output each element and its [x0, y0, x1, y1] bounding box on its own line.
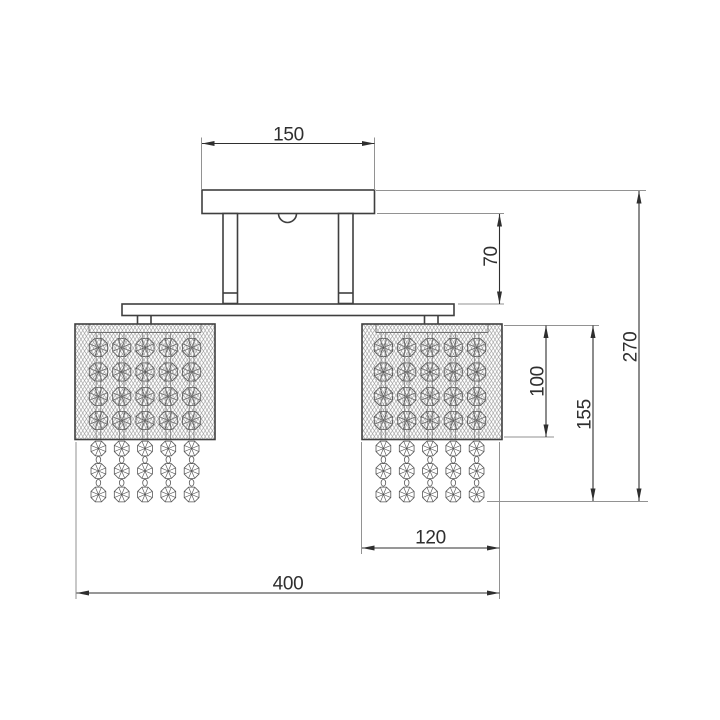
- arrow-down-icon: [637, 489, 642, 502]
- strand-link: [119, 479, 124, 486]
- strand-link: [474, 479, 479, 486]
- crystal-bead: [114, 464, 129, 479]
- arrow-right-icon: [487, 546, 500, 551]
- crystal-bead: [423, 441, 438, 456]
- dim-label-400: 400: [273, 574, 304, 595]
- crystal-bead: [114, 441, 129, 456]
- stem-left: [223, 214, 238, 304]
- dim-shade-drop-155: 155: [575, 326, 596, 502]
- arrow-up-icon: [591, 326, 596, 339]
- technical-drawing-page: 150 70 100 155 270: [0, 0, 720, 720]
- arrow-right-icon: [362, 141, 375, 146]
- arrow-left-icon: [77, 591, 90, 596]
- strand-link: [119, 456, 124, 463]
- crystal-bead: [138, 441, 153, 456]
- crystal-bead: [399, 464, 414, 479]
- strand-link: [451, 456, 456, 463]
- crystal-bead: [469, 464, 484, 479]
- strand-link: [143, 479, 148, 486]
- dim-label-270: 270: [621, 332, 642, 363]
- arrow-up-icon: [544, 326, 549, 339]
- crystal-bead: [399, 487, 414, 502]
- crystal-bead: [184, 464, 199, 479]
- strand-link: [381, 456, 386, 463]
- strand-link: [404, 456, 409, 463]
- mesh-panel-left: [75, 324, 215, 440]
- stem-right: [339, 214, 354, 304]
- dim-overall-width-400: 400: [77, 574, 500, 596]
- arrow-up-icon: [497, 214, 502, 227]
- strand-link: [96, 479, 101, 486]
- dim-stem-drop-70: 70: [481, 214, 502, 304]
- crystal-bead: [423, 464, 438, 479]
- crystal-bead: [161, 464, 176, 479]
- strand-link: [404, 479, 409, 486]
- crystal-bead: [91, 487, 106, 502]
- dim-shade-height-100: 100: [528, 326, 549, 438]
- crystal-bead: [91, 441, 106, 456]
- arrow-left-icon: [362, 546, 375, 551]
- strand-link: [166, 479, 171, 486]
- crystal-bead: [138, 487, 153, 502]
- crystal-bead: [423, 487, 438, 502]
- crystal-bead: [446, 464, 461, 479]
- dim-shade-width-120: 120: [362, 528, 500, 551]
- strand-link: [428, 479, 433, 486]
- strand-link: [189, 456, 194, 463]
- crystal-bead: [161, 441, 176, 456]
- strand-link: [96, 456, 101, 463]
- arrow-down-icon: [497, 292, 502, 305]
- crystal-bead: [138, 464, 153, 479]
- shade-left: [75, 324, 215, 502]
- stem-right-body: [339, 214, 354, 304]
- suspension-stubs: [138, 316, 439, 325]
- strand-link: [474, 456, 479, 463]
- arrow-left-icon: [202, 141, 215, 146]
- dim-canopy-width-150: 150: [202, 125, 375, 147]
- arrow-right-icon: [487, 591, 500, 596]
- fixture-body: [75, 190, 502, 502]
- dim-label-155: 155: [575, 399, 596, 430]
- crystal-bead: [184, 441, 199, 456]
- crystal-bead: [184, 487, 199, 502]
- ceiling-canopy: [202, 190, 375, 214]
- stem-left-body: [223, 214, 238, 304]
- cross-arm: [122, 304, 454, 316]
- dim-overall-height-270: 270: [621, 191, 642, 501]
- crystal-bead: [376, 441, 391, 456]
- crystal-bead: [399, 441, 414, 456]
- crystal-bead: [469, 487, 484, 502]
- arrow-down-icon: [591, 489, 596, 502]
- strand-link: [381, 479, 386, 486]
- strand-link: [189, 479, 194, 486]
- strand-link: [143, 456, 148, 463]
- crystal-bead: [469, 441, 484, 456]
- crystal-bead: [446, 441, 461, 456]
- strand-link: [428, 456, 433, 463]
- crystal-strands-below-left: [91, 441, 199, 502]
- crystal-strands-below-right: [376, 441, 484, 502]
- shade-right: [362, 324, 502, 502]
- dim-label-70: 70: [481, 246, 502, 267]
- crystal-bead: [446, 487, 461, 502]
- strand-link: [451, 479, 456, 486]
- dim-label-150: 150: [273, 125, 304, 146]
- chandelier-technical-drawing: 150 70 100 155 270: [0, 0, 720, 720]
- crystal-bead: [376, 464, 391, 479]
- arrow-down-icon: [544, 425, 549, 438]
- crystal-bead: [161, 487, 176, 502]
- strand-link: [166, 456, 171, 463]
- mesh-panel-right: [362, 324, 502, 440]
- crystal-bead: [114, 487, 129, 502]
- arrow-up-icon: [637, 191, 642, 204]
- crystal-bead: [376, 487, 391, 502]
- crystal-bead: [91, 464, 106, 479]
- canopy-knob: [279, 214, 297, 223]
- dim-label-120: 120: [415, 528, 446, 549]
- dim-label-100: 100: [528, 366, 549, 397]
